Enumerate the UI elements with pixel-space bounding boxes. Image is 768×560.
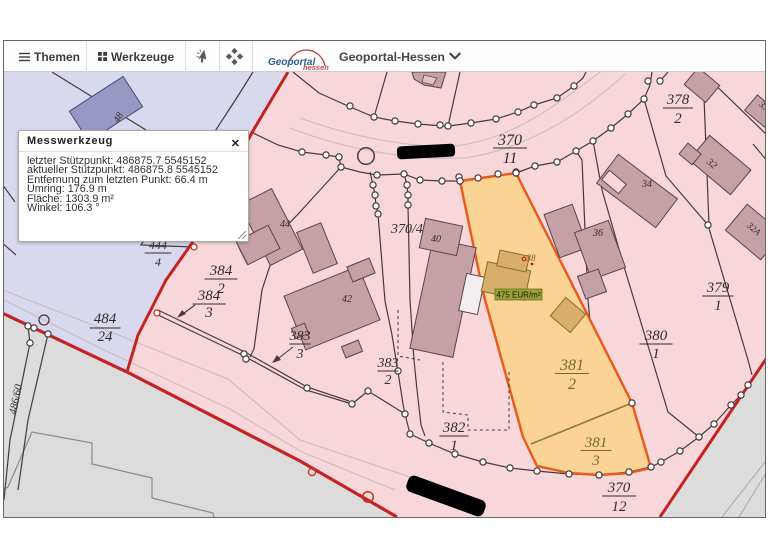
svg-text:384: 384 [197,288,221,304]
svg-text:379: 379 [706,280,730,296]
svg-text:38: 38 [526,253,537,263]
svg-text:1: 1 [652,346,660,362]
svg-text:370: 370 [497,132,522,149]
svg-text:3: 3 [296,347,304,362]
svg-text:2: 2 [568,376,576,393]
svg-text:12: 12 [612,499,628,515]
svg-text:34: 34 [641,179,652,190]
svg-text:1: 1 [714,298,722,314]
svg-text:383: 383 [289,329,311,344]
svg-text:384: 384 [209,263,233,279]
svg-text:382: 382 [442,420,466,436]
svg-text:42: 42 [342,294,352,305]
svg-text:3: 3 [204,305,213,321]
svg-text:44: 44 [280,219,290,230]
svg-text:378: 378 [666,92,690,108]
svg-text:381: 381 [559,357,584,374]
svg-text:4: 4 [155,255,161,269]
svg-text:484: 484 [94,311,117,327]
svg-text:381: 381 [584,435,608,451]
svg-text:1: 1 [450,438,458,454]
svg-text:hessen: hessen [303,63,329,72]
svg-text:383: 383 [377,356,399,371]
svg-text:380: 380 [644,328,668,344]
svg-text:3: 3 [591,453,600,469]
svg-text:11: 11 [503,150,518,167]
svg-text:24: 24 [98,329,114,345]
svg-text:40: 40 [431,234,441,245]
svg-text:475 EUR/m²: 475 EUR/m² [496,291,540,300]
svg-text:370: 370 [607,480,631,496]
svg-text:370/4: 370/4 [390,222,423,237]
svg-text:2: 2 [385,373,392,388]
svg-text:36: 36 [592,228,603,239]
svg-text:2: 2 [674,111,682,127]
